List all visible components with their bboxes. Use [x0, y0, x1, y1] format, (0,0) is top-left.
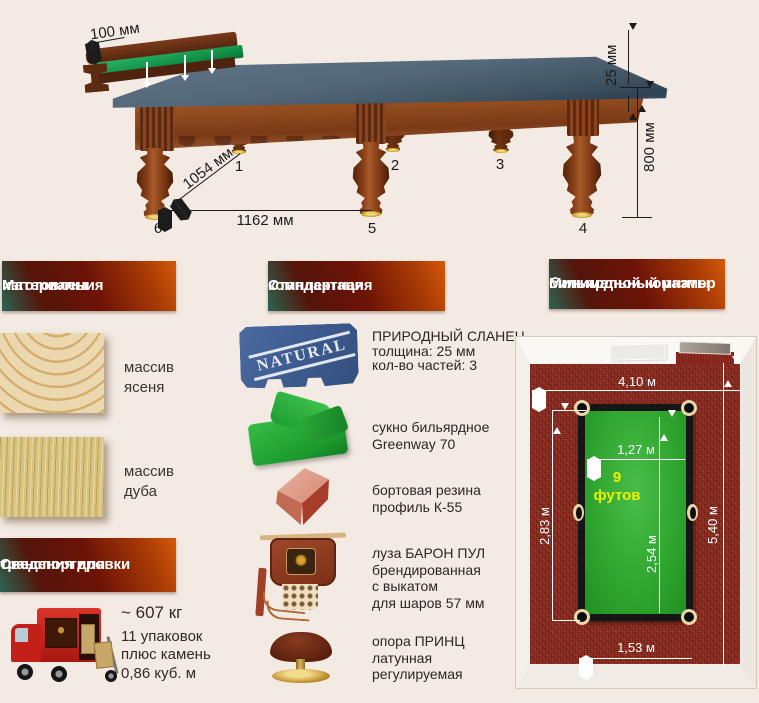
pocket-line1: луза БАРОН ПУЛ — [372, 545, 532, 562]
truck-window — [15, 628, 28, 642]
corner-post — [567, 94, 599, 136]
tick-mark — [622, 217, 652, 218]
end-clearance-label: 1,53 м — [586, 640, 686, 655]
slate-line1: ПРИРОДНЫЙ СЛАНЕЦ — [372, 329, 532, 344]
table-width-label: 1,27 м — [587, 442, 685, 457]
billiard-spec-infographic: 100 мм 1054 мм 1162 мм 25 мм 800 мм 1 2 … — [0, 0, 759, 703]
slate-line3: кол-во частей: 3 — [372, 358, 532, 373]
leg-spacing-label: 1162 мм — [215, 212, 315, 229]
ash-label-line2: ясеня — [124, 378, 234, 398]
materials-header: Материалы изготовления — [2, 261, 176, 311]
corner-pocket — [574, 400, 590, 416]
transport-packages1: 11 упаковок — [121, 628, 202, 645]
wheel — [51, 666, 67, 682]
rubber-line1: бортовая резина — [372, 482, 532, 499]
door — [679, 341, 731, 355]
ash-label-line1: массив — [124, 358, 234, 378]
room-width-arrow — [532, 390, 742, 391]
natural-stamp: NATURAL — [248, 331, 355, 381]
leg-foot — [572, 212, 592, 218]
ash-wood-sample — [0, 333, 104, 413]
oak-label-line1: массив — [124, 462, 234, 482]
down-arrow-icon — [211, 50, 213, 68]
leg-number: 1 — [230, 158, 248, 175]
corner-post — [356, 98, 386, 144]
table-leg-front — [352, 142, 390, 214]
slate-thickness-arrow-top — [628, 30, 629, 84]
leg-number: 3 — [491, 156, 509, 173]
cloth-line1: сукно бильярдное — [372, 419, 532, 436]
equipment-header: Стандартная комплектация — [268, 261, 445, 311]
slate-icon: NATURAL — [239, 323, 359, 389]
truck-logo-panel — [45, 618, 77, 648]
support-wood-cap — [270, 632, 332, 662]
room-width-label: 4,10 м — [587, 374, 687, 389]
cloth-description: сукно бильярдное Greenway 70 — [372, 419, 532, 452]
room-length-label: 5,40 м — [705, 490, 720, 544]
cargo-crate — [81, 624, 95, 654]
oak-wood-sample — [0, 437, 104, 517]
table-figure: 100 мм 1054 мм 1162 мм 25 мм 800 мм 1 2 … — [0, 0, 759, 255]
ash-label: массив ясеня — [124, 358, 234, 399]
room-length-arrow — [723, 363, 724, 668]
wheel — [17, 664, 33, 680]
cloth-line2: Greenway 70 — [372, 436, 532, 453]
side-clearance-label: 2,83 м — [537, 493, 552, 545]
tick-mark — [552, 410, 586, 411]
leg-foot — [361, 211, 381, 217]
pocket-brass-rail — [265, 600, 310, 621]
leg-foot — [494, 149, 508, 153]
window — [610, 343, 666, 360]
leg-foot — [386, 148, 400, 152]
leg-number: 5 — [363, 220, 381, 237]
oak-label-line2: дуба — [124, 482, 234, 502]
room-header-line2: бильярдной комнаты — [549, 274, 710, 294]
slate-description: ПРИРОДНЫЙ СЛАНЕЦ толщина: 25 мм кол-во ч… — [372, 329, 532, 373]
leg-spacing-arrow — [158, 210, 372, 211]
table-leg-front — [562, 136, 602, 214]
support-line3: регулируемая — [372, 666, 532, 683]
truck-illustration — [7, 600, 119, 688]
side-pocket — [687, 504, 698, 521]
transport-volume: 0,86 куб. м — [121, 665, 196, 682]
table-size-line1: 9 — [581, 469, 653, 487]
table-size-label: 9 футов — [581, 469, 653, 505]
support-line2: латунная — [372, 650, 532, 667]
room-diagram: 4,10 м 1,27 м 9 футов 2,54 м 2,83 м 5,40… — [515, 336, 757, 689]
support-description: опора ПРИНЦ латунная регулируемая — [372, 633, 532, 683]
down-arrow-icon — [184, 55, 186, 75]
slate-thickness-label: 25 мм — [603, 28, 620, 86]
slate-line2: толщина: 25 мм — [372, 344, 532, 359]
end-clearance-arrow — [579, 658, 692, 659]
slate-thickness-arrow-bottom — [628, 96, 629, 112]
corner-post — [140, 103, 174, 151]
pocket-description: луза БАРОН ПУЛ брендированная с выкатом … — [372, 545, 532, 611]
table-size-line2: футов — [581, 487, 653, 505]
dolly-wheel — [105, 670, 117, 682]
rubber-description: бортовая резина профиль К-55 — [372, 482, 532, 515]
table-length-arrow — [659, 417, 660, 613]
table-leg-front — [136, 148, 174, 216]
transport-weight: ~ 607 кг — [121, 603, 182, 623]
leg-number: 2 — [386, 157, 404, 174]
support-brass-disc — [272, 669, 330, 683]
leg-number: 6 — [149, 220, 167, 237]
corner-pocket — [681, 609, 697, 625]
corner-pocket — [574, 609, 590, 625]
pocket-line4: для шаров 57 мм — [372, 595, 532, 612]
rubber-line2: профиль К-55 — [372, 499, 532, 516]
transport-header-line2: транспортировки — [0, 555, 130, 575]
equipment-header-line2: комплектация — [268, 276, 373, 296]
tick-mark — [620, 87, 650, 88]
side-pocket — [573, 504, 584, 521]
table-height-arrow — [637, 88, 638, 218]
table-width-arrow — [587, 459, 685, 460]
pocket-lion-emblem — [286, 548, 316, 575]
transport-packages2: плюс камень — [121, 646, 211, 663]
transport-header: Сведения для транспортировки — [0, 538, 176, 592]
pocket-line3: с выкатом — [372, 578, 532, 595]
oak-label: массив дуба — [124, 462, 234, 503]
table-length-label: 2,54 м — [644, 525, 659, 573]
support-line1: опора ПРИНЦ — [372, 633, 532, 650]
side-clearance-arrow — [552, 410, 553, 621]
rubber-icon — [275, 468, 329, 525]
down-arrow-icon — [146, 62, 148, 82]
corner-pocket — [681, 400, 697, 416]
table-height-label: 800 мм — [641, 110, 658, 172]
dolly-crate — [94, 641, 115, 669]
room-header: Минимальный размер бильярдной комнаты — [549, 259, 725, 309]
tick-mark — [552, 620, 580, 621]
materials-header-line2: изготовления — [2, 276, 104, 296]
pocket-line2: брендированная — [372, 562, 532, 579]
leg-number: 4 — [574, 220, 592, 237]
pool-table-topview — [578, 404, 693, 621]
